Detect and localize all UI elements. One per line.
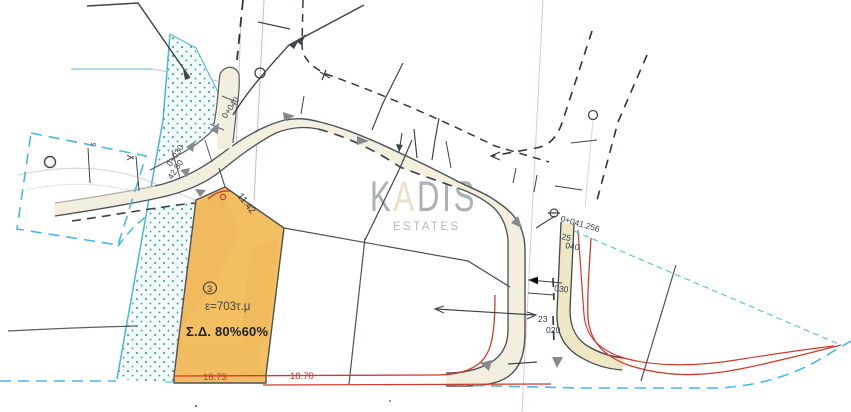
svg-text:ESTATES: ESTATES [393,221,461,233]
svg-text:Σ.Δ. 80%60%: Σ.Δ. 80%60% [186,324,268,339]
svg-text:23: 23 [538,314,548,324]
svg-text:030: 030 [554,283,569,294]
svg-text:18.73: 18.73 [203,372,227,383]
svg-text:3: 3 [207,284,212,295]
svg-text:18.70: 18.70 [290,371,314,382]
svg-text:020: 020 [546,325,560,335]
svg-text:ε=703τ.μ: ε=703τ.μ [205,301,250,313]
